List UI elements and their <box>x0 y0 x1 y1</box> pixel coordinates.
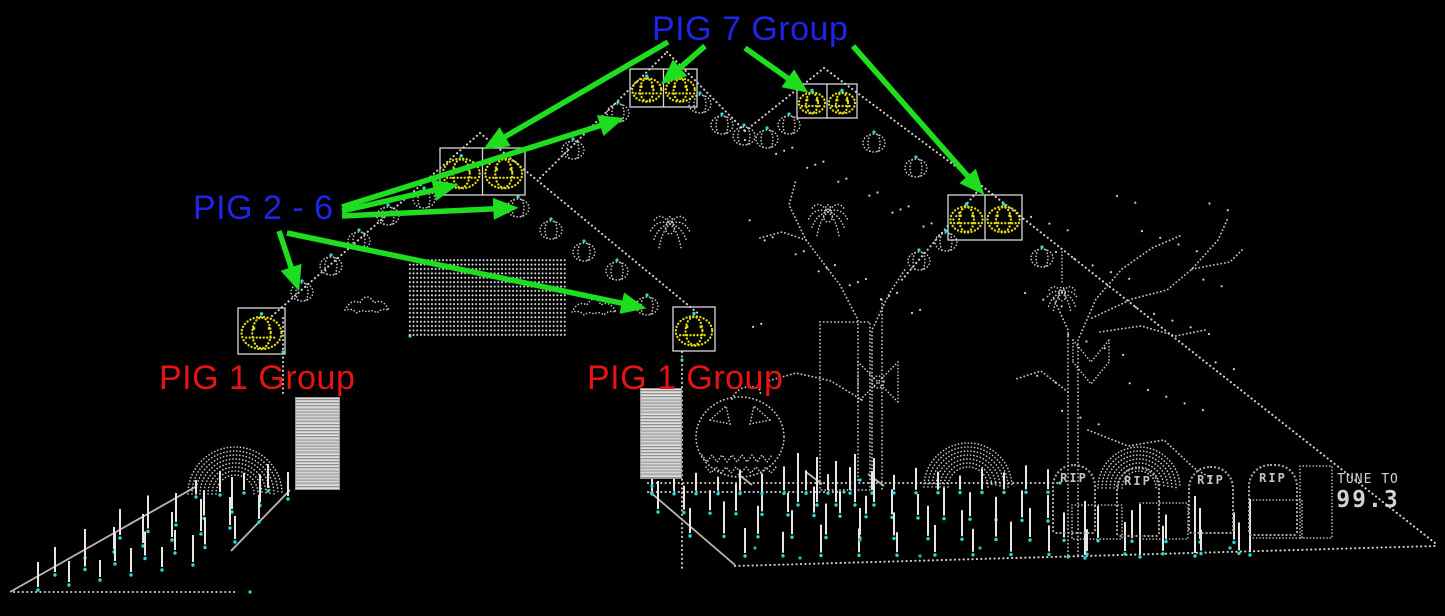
pumpkin-icon <box>562 137 584 159</box>
pumpkin-group-icon <box>676 312 712 346</box>
tombstone-rip: RIP <box>1188 466 1234 534</box>
pumpkin-icon <box>863 130 885 152</box>
tune-to-sign: TUNE TO 99.3 <box>1322 472 1414 513</box>
pumpkin-icon <box>711 112 733 134</box>
tombstone-text: RIP <box>1124 474 1152 488</box>
pumpkin-group-icon <box>443 154 480 188</box>
pumpkin-icon <box>573 239 595 261</box>
label-pig2-6: PIG 2 - 6 <box>193 189 334 228</box>
pumpkin-icon <box>905 155 927 177</box>
pumpkin-icon <box>507 195 529 217</box>
tombstone-text: RIP <box>1197 473 1225 487</box>
radio-frequency: 99.3 <box>1322 487 1414 513</box>
tree-branch <box>1100 326 1205 336</box>
scatter-dots <box>1024 195 1235 426</box>
spider-icon <box>650 216 690 248</box>
jack-o-lantern-icon <box>696 387 784 477</box>
spider-icon <box>808 204 848 236</box>
pumpkin-group-icon <box>485 154 522 188</box>
tree-branch <box>1092 218 1228 318</box>
tombstone-text: RIP <box>1060 471 1088 485</box>
pumpkin-group-icon <box>666 74 695 101</box>
tree-branch <box>789 180 858 480</box>
pumpkin-icon <box>689 91 711 113</box>
pixel-pillar <box>640 388 682 479</box>
pixel-matrix-panel <box>408 258 566 338</box>
tombstone-rip: RIP <box>1052 464 1096 534</box>
pumpkin-icon <box>733 123 755 145</box>
pumpkin-group-icon <box>829 89 855 114</box>
tune-to-text: TUNE TO <box>1322 472 1414 487</box>
spider-web-icon <box>858 362 898 402</box>
tree-branch <box>1192 250 1242 269</box>
bat-icon <box>345 297 389 313</box>
pumpkin-group-icon <box>987 202 1019 232</box>
tombstone-text: RIP <box>1259 471 1287 485</box>
tree-branch <box>760 232 806 240</box>
door-frame <box>820 322 870 490</box>
spider-icon <box>1046 287 1078 312</box>
pumpkin-group-icon <box>242 312 282 349</box>
pumpkin-icon <box>636 293 658 315</box>
lawn-stakes-row <box>796 453 875 507</box>
label-pig1-group-left: PIG 1 Group <box>159 359 355 398</box>
scatter-dots <box>744 139 933 328</box>
label-pig1-group-center: PIG 1 Group <box>587 359 783 398</box>
pumpkin-group-icon <box>950 202 982 232</box>
pumpkin-icon <box>756 126 778 148</box>
tombstone-rip: RIP <box>1248 464 1298 536</box>
lawn-stakes-row <box>53 516 236 577</box>
tree-branch <box>1016 371 1068 392</box>
pumpkin-icon <box>1031 245 1053 267</box>
pumpkin-group-icon <box>632 74 661 101</box>
tree-branch <box>872 268 906 480</box>
tombstone-rip: RIP <box>1116 467 1160 537</box>
lawn-stakes-row <box>656 481 1049 523</box>
pumpkin-icon <box>607 100 629 122</box>
halloween-light-display-layout: PIG 7 Group PIG 2 - 6 PIG 1 Group PIG 1 … <box>0 0 1445 616</box>
pumpkin-icon <box>606 258 628 280</box>
pumpkin-icon <box>413 186 435 208</box>
pixel-pillar <box>295 397 340 490</box>
bat-icon <box>572 299 616 315</box>
label-pig7-group: PIG 7 Group <box>652 10 848 49</box>
pumpkin-group-icon <box>799 89 825 114</box>
pumpkin-icon <box>540 217 562 239</box>
